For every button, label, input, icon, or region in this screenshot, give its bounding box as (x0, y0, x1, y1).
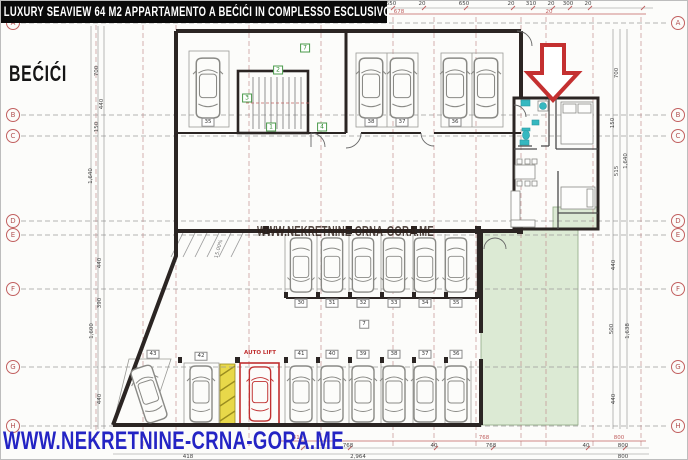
website-url: WWW.NEKRETNINE-CRNA-GORA.ME (3, 427, 344, 456)
doors (311, 31, 532, 249)
parking-number: 35 (450, 299, 463, 308)
stair-zone-label: 1 (266, 123, 276, 132)
dimension-label: 440 (99, 99, 105, 110)
dimension-label: 650 (459, 1, 470, 7)
dimension-label: 20 (508, 1, 515, 7)
dimension-label: 768 (486, 443, 497, 449)
dimension-label: 800 (614, 435, 625, 441)
stair-zone-label: 2 (273, 66, 283, 75)
parking-number: 38 (365, 118, 378, 127)
parking-number: 39 (357, 350, 370, 359)
grid-bubble-left: D (6, 214, 20, 228)
parking-number: 36 (449, 118, 462, 127)
parking-number: 31 (326, 299, 339, 308)
dimension-label: 650 (386, 1, 397, 7)
grid-bubble-right: C (671, 129, 685, 143)
dimension-label: 440 (97, 258, 103, 269)
watermark-center: WWW.NEKRETNINE-CRNA-GORA.ME (257, 223, 434, 240)
parking-number: 36 (450, 350, 463, 359)
dimension-label: 20 (546, 9, 553, 15)
dimension-label: 678 (394, 9, 405, 15)
dimension-label: 800 (618, 454, 629, 460)
dimension-label: 310 (526, 1, 537, 7)
dimension-label: 440 (611, 260, 617, 271)
grid-bubble-left: F (6, 282, 20, 296)
staircase (246, 77, 311, 129)
parking-number: 30 (295, 299, 308, 308)
location-label: BEĆIĆI (9, 61, 67, 87)
parking-number: 34 (419, 299, 432, 308)
dimension-label: 800 (618, 443, 629, 449)
auto-lift-label: AUTO LIFT (244, 350, 276, 356)
parking-number: 37 (396, 118, 409, 127)
dimension-label: 390 (97, 298, 103, 309)
parking-number: 43 (147, 350, 160, 359)
dimension-label: 440 (611, 394, 617, 405)
parking-number: 35 (202, 118, 215, 127)
tilted-car (127, 363, 171, 425)
grid-bubble-right: D (671, 214, 685, 228)
dimension-label: 40 (431, 443, 438, 449)
dimension-label: 1,640 (623, 153, 629, 169)
grid-bubble-left: G (6, 360, 20, 374)
grid-bubble-right: H (671, 419, 685, 433)
grid-bubble-left: C (6, 129, 20, 143)
dimension-label: 515 (614, 166, 620, 177)
grid-bubble-left: E (6, 228, 20, 242)
dimension-label: 40 (583, 443, 590, 449)
dimension-label: 440 (97, 394, 103, 405)
dimension-label: 20 (585, 1, 592, 7)
dimension-label: 1,638 (625, 323, 631, 339)
garden-terrace-area (481, 207, 598, 425)
dimension-label: 300 (563, 1, 574, 7)
grid-bubble-right: B (671, 108, 685, 122)
floorplan-listing-image: LUXURY SEAVIEW 64 M2 APPARTAMENTO A BEĆI… (0, 0, 688, 460)
dimension-label: 768 (479, 435, 490, 441)
dimension-label: 700 (94, 66, 100, 77)
location-arrow-icon (528, 45, 578, 100)
parking-number: 42 (195, 352, 208, 361)
dimension-label: 2,964 (350, 454, 366, 460)
dimension-label: 1,640 (88, 168, 94, 184)
parking-number: 33 (388, 299, 401, 308)
grid-bubble-right: F (671, 282, 685, 296)
bathroom-fixtures (520, 100, 547, 145)
dimension-label: 150 (610, 118, 616, 129)
parked-cars (127, 58, 501, 425)
dimension-label: 20 (419, 1, 426, 7)
grid-bubble-left: B (6, 108, 20, 122)
parking-number: 32 (357, 299, 370, 308)
parking-number: 38 (388, 350, 401, 359)
dimension-label: 768 (343, 443, 354, 449)
dimension-label: 1,600 (89, 323, 95, 339)
stair-zone-label: 3 (242, 94, 252, 103)
stair-zone-label: 4 (317, 123, 327, 132)
dimension-label: 20 (548, 1, 555, 7)
dimension-label: 150 (94, 122, 100, 133)
parking-number: 37 (419, 350, 432, 359)
zone-label: 7 (300, 44, 310, 53)
auto-lift-car (246, 367, 273, 421)
grid-bubble-right: G (671, 360, 685, 374)
dimension-label: 700 (614, 68, 620, 79)
top-banner: LUXURY SEAVIEW 64 M2 APPARTAMENTO A BEĆI… (1, 1, 387, 23)
zone-label: 7 (359, 320, 369, 329)
listing-title: LUXURY SEAVIEW 64 M2 APPARTAMENTO A BEĆI… (1, 1, 387, 23)
grid-bubble-right: A (671, 16, 685, 30)
ramp (171, 233, 243, 257)
parking-number: 40 (326, 350, 339, 359)
grid-bubble-right: E (671, 228, 685, 242)
parking-number: 41 (295, 350, 308, 359)
dimension-label: 500 (609, 324, 615, 335)
